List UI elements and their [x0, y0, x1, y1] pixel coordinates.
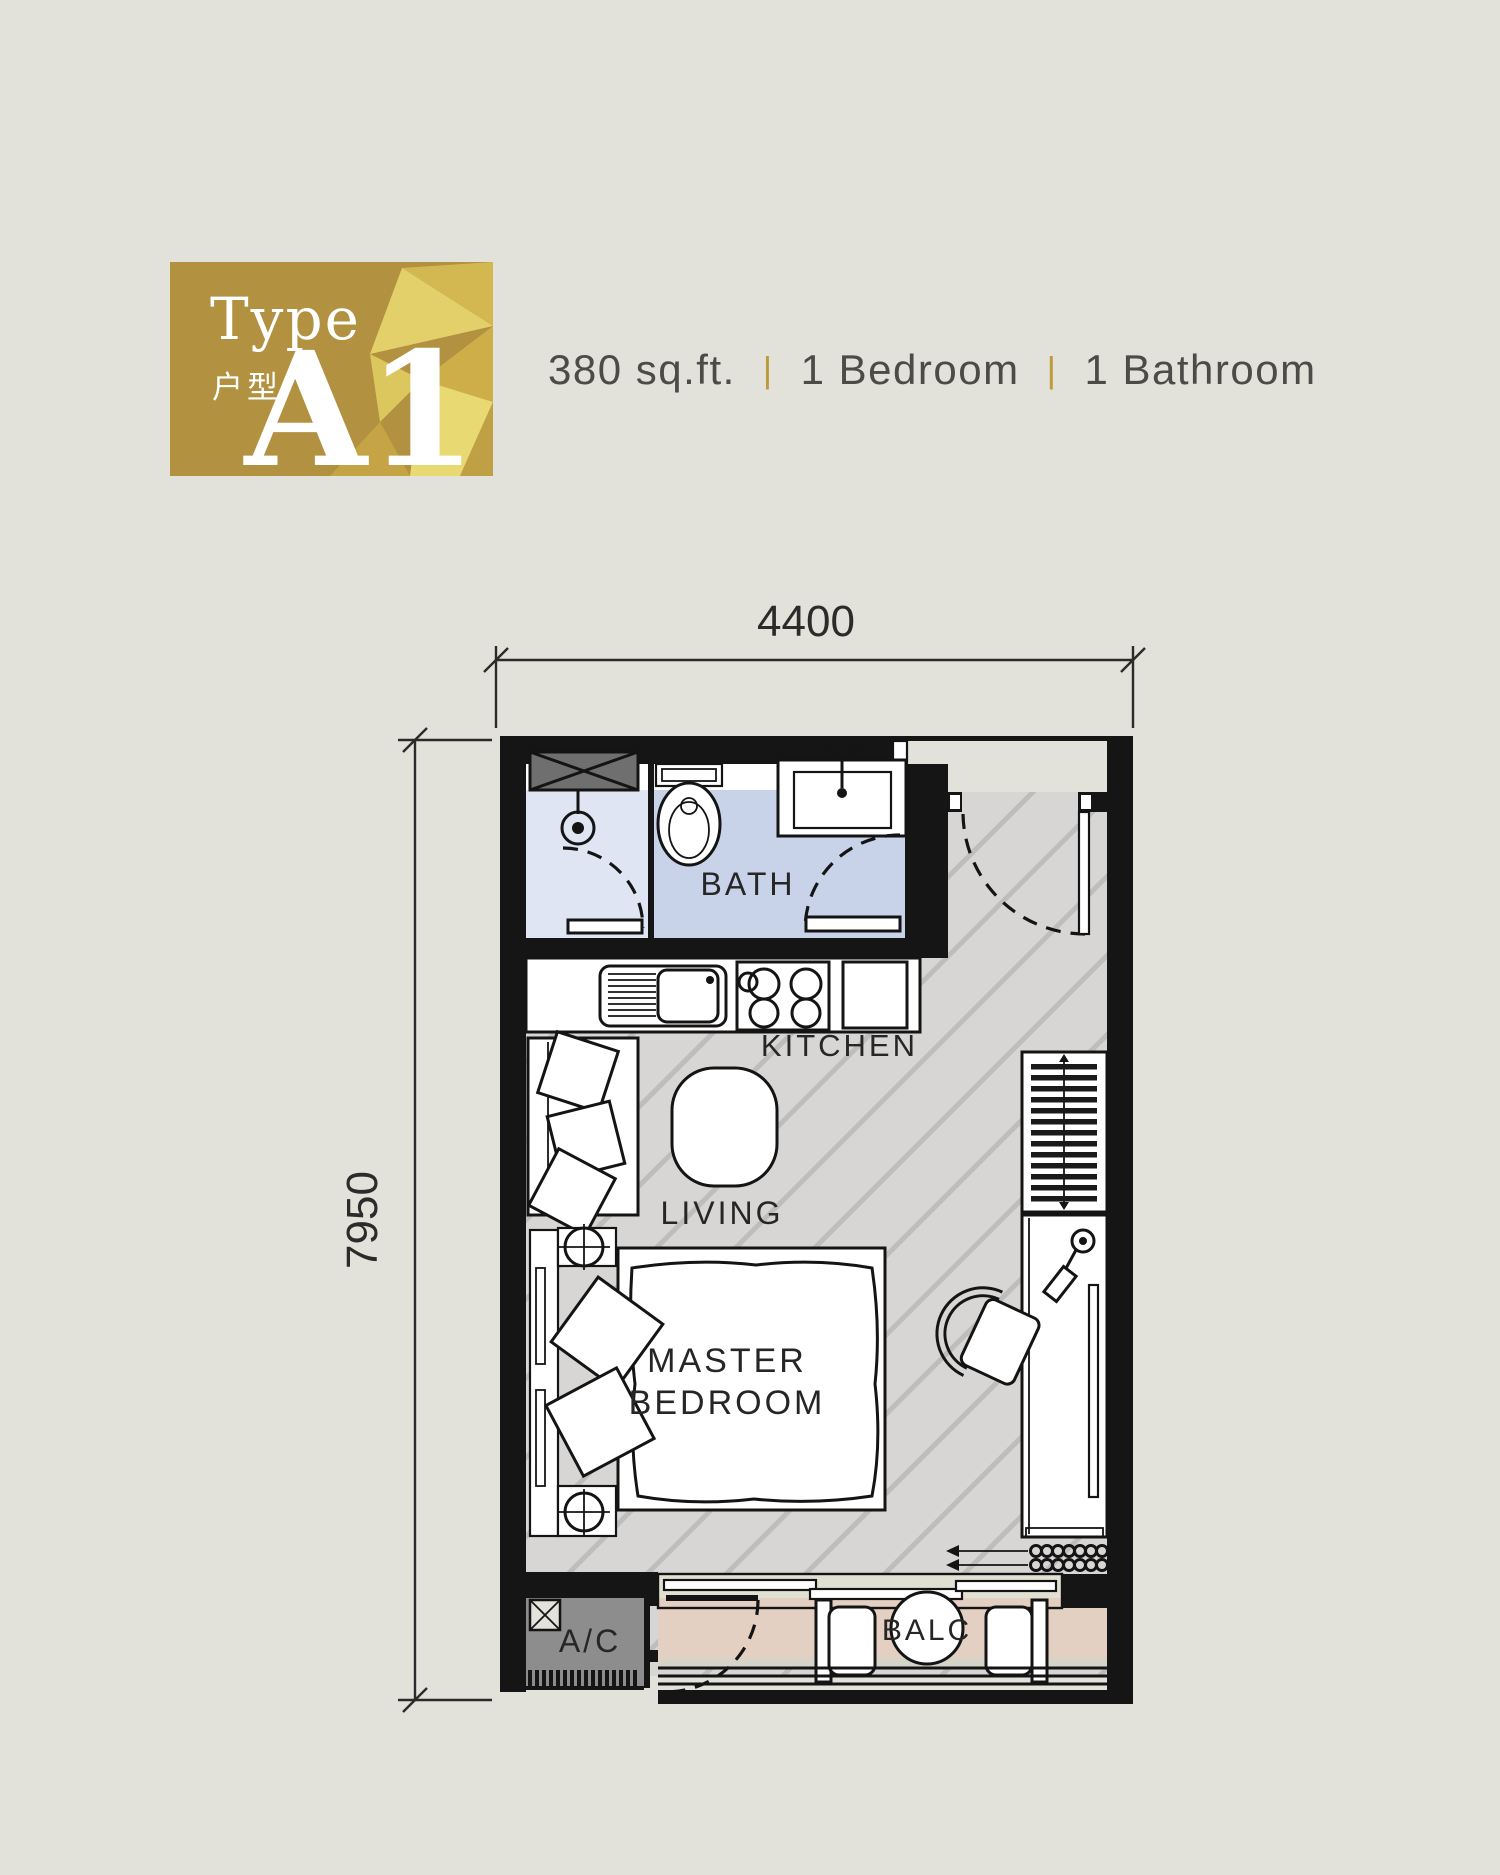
label-bath: BATH: [701, 866, 796, 902]
entry-jamb-right: [1081, 795, 1091, 809]
mirror-symbol: [1089, 1285, 1098, 1497]
dimension-top: 4400: [484, 597, 1145, 728]
ac-shaft-symbol: [530, 1600, 560, 1630]
wall-kitchen: [526, 938, 948, 958]
wall-bottom: [658, 1690, 1133, 1704]
kitchen-sink-symbol: [600, 966, 726, 1026]
wardrobe-symbol: [1022, 1052, 1107, 1212]
label-ac: A/C: [559, 1623, 621, 1659]
dimension-left: 7950: [338, 728, 492, 1712]
label-master-bedroom-line2: BEDROOM: [629, 1384, 826, 1422]
entry-jamb-left: [950, 795, 960, 809]
sofa-symbol: [528, 1032, 638, 1236]
kitchen-counter: [526, 958, 920, 1032]
label-balcony: BALC: [882, 1614, 972, 1647]
wall-right: [1107, 736, 1133, 1704]
duvet: [631, 1262, 878, 1502]
toilet-symbol: [656, 764, 722, 865]
label-kitchen: KITCHEN: [761, 1028, 918, 1063]
dimension-width-value: 4400: [757, 597, 855, 646]
shower-floor: [526, 790, 648, 938]
balcony-chair-symbol: [986, 1600, 1047, 1682]
wall-left: [500, 736, 526, 1692]
balcony-chair-symbol: [816, 1600, 875, 1682]
wall-ac-top: [500, 1572, 658, 1598]
hob-symbol: [737, 962, 829, 1030]
coffee-table-symbol: [672, 1068, 777, 1186]
dimension-height-value: 7950: [338, 1171, 387, 1269]
duct-shaft-symbol: [530, 752, 638, 790]
worktop-module: [843, 962, 907, 1028]
wall-bath-entry: [905, 764, 948, 958]
floorplan-drawing: 4400 7950: [0, 0, 1500, 1875]
shower-partition: [648, 764, 654, 938]
label-living: LIVING: [661, 1195, 784, 1231]
dressing-desk-symbol: [1022, 1215, 1107, 1537]
label-master-bedroom-line1: MASTER: [647, 1342, 807, 1380]
floorplan-page: Type 户型 A1 380 sq.ft. | 1 Bedroom | 1 Ba…: [0, 0, 1500, 1875]
